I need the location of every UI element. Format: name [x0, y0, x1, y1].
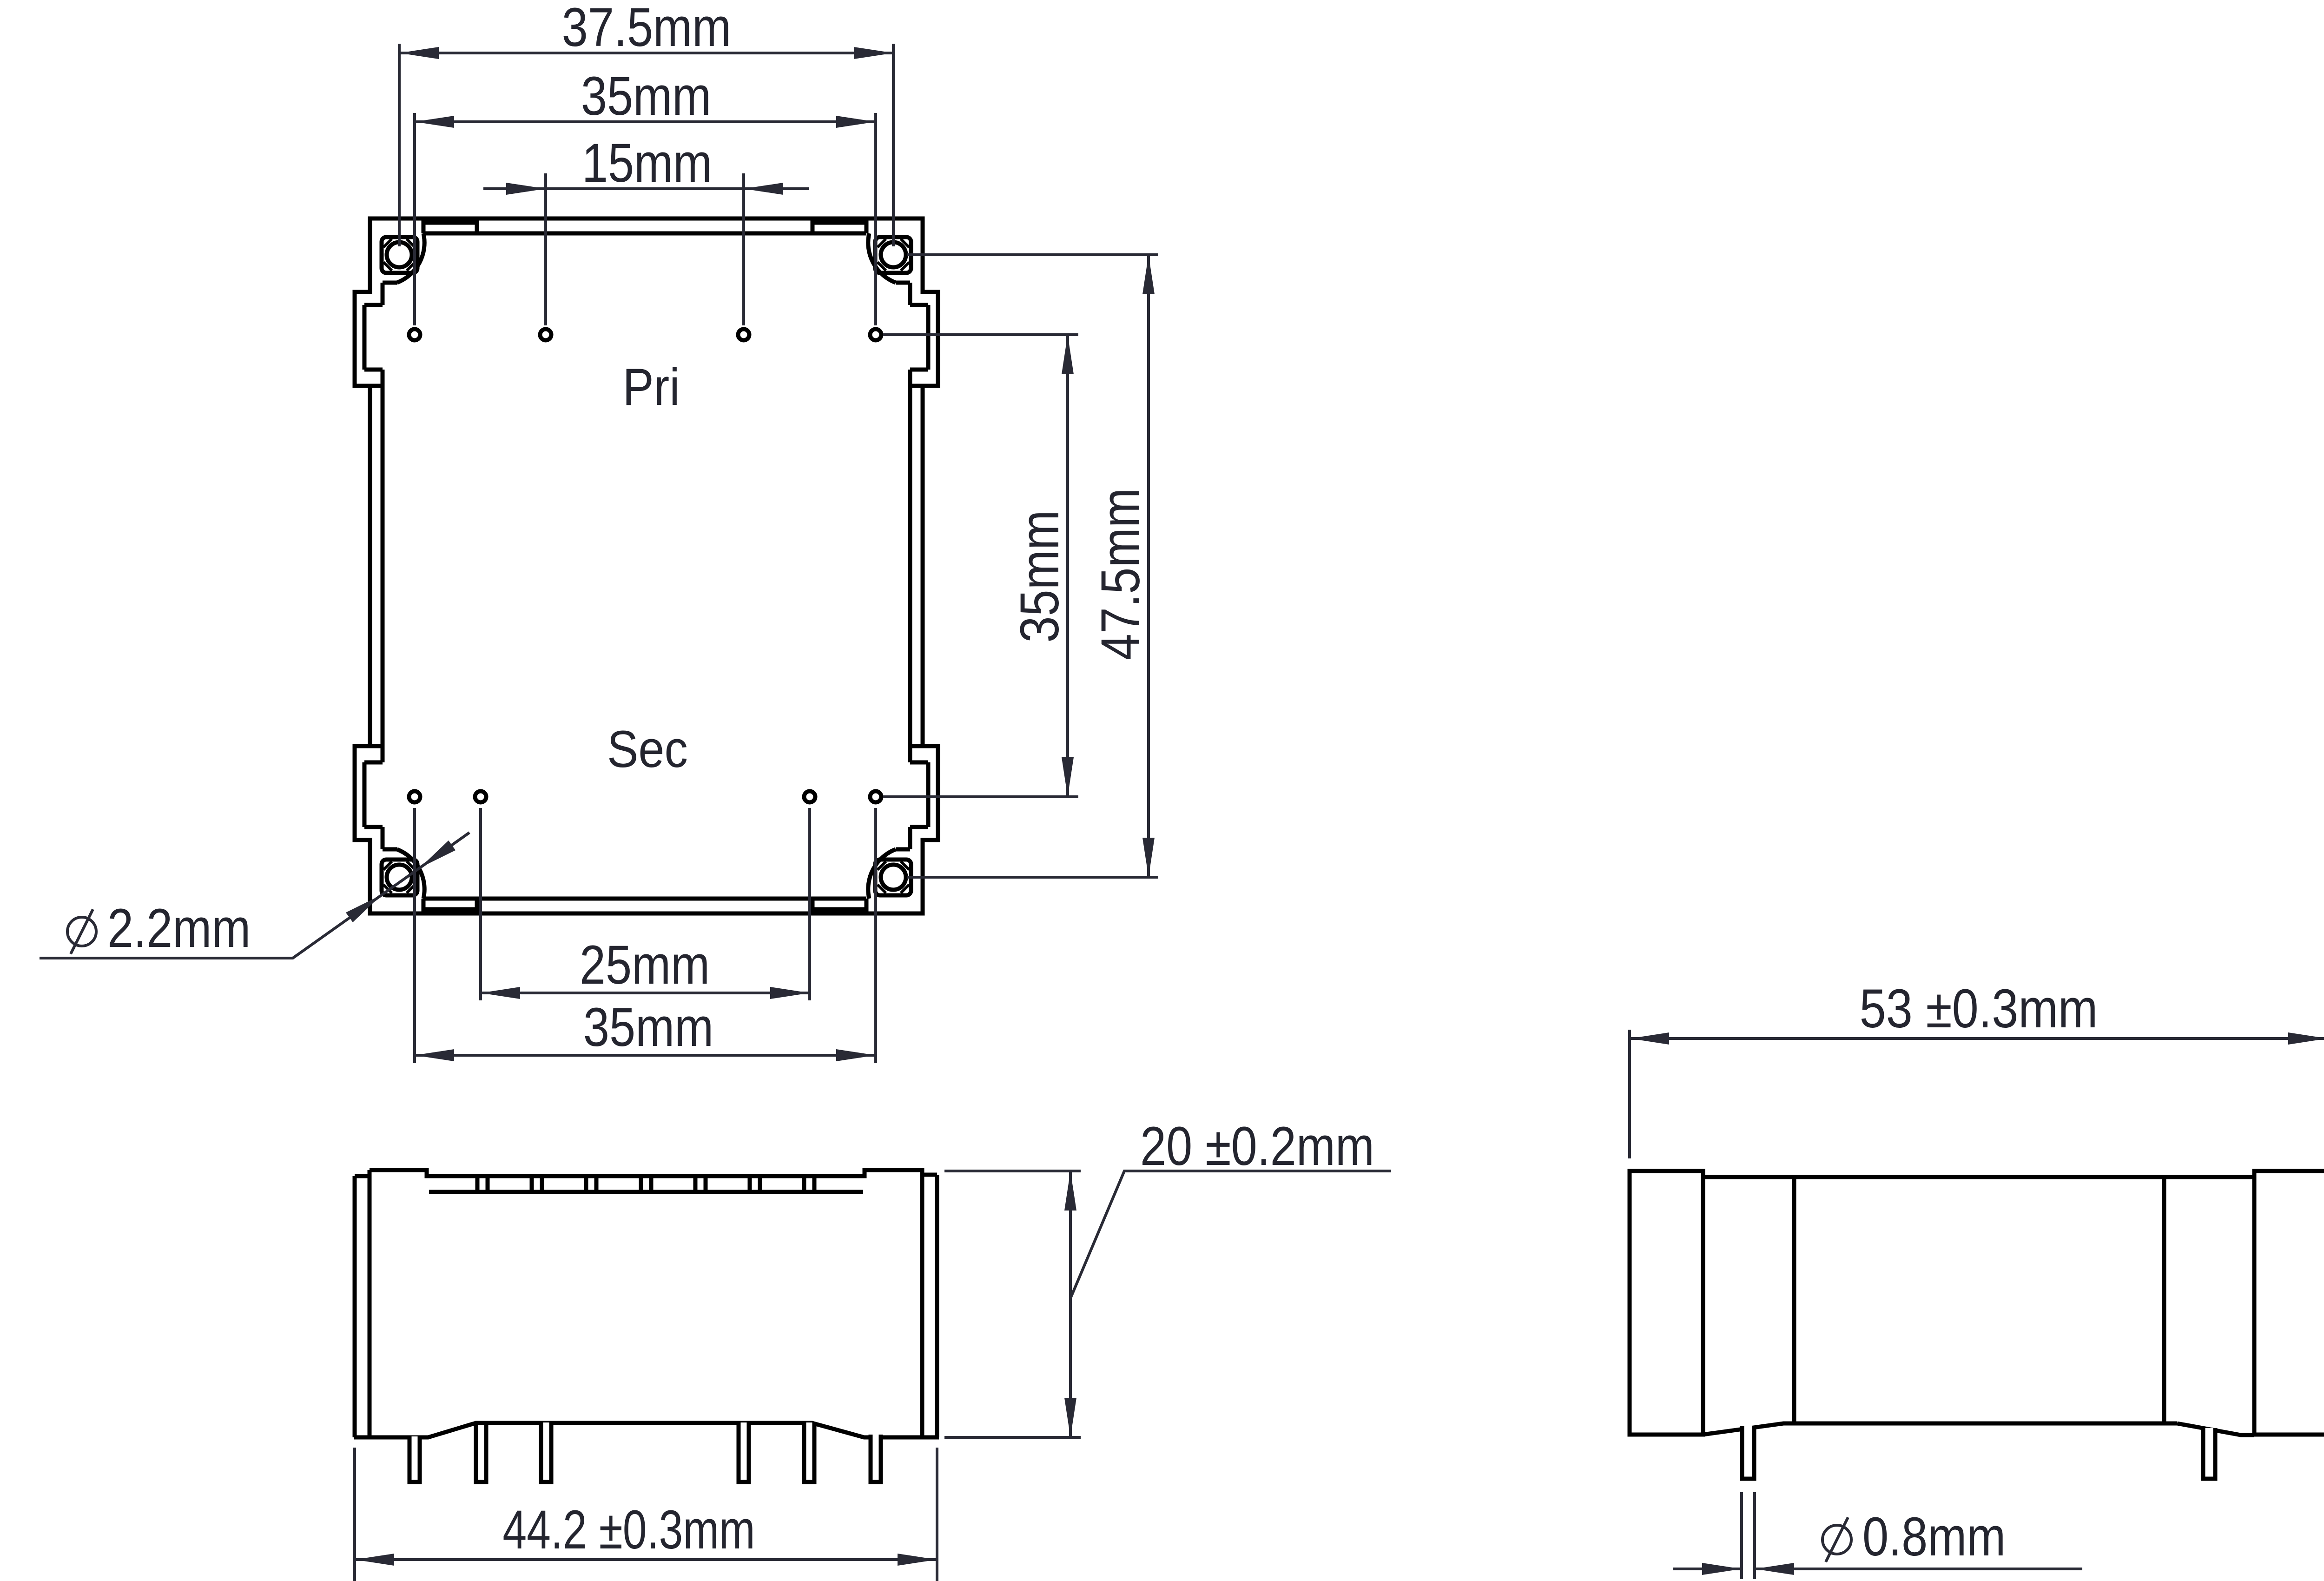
- svg-text:Sec: Sec: [607, 720, 688, 778]
- svg-text:35mm: 35mm: [1009, 510, 1070, 642]
- svg-text:44.2 ±0.3mm: 44.2 ±0.3mm: [502, 1499, 755, 1560]
- svg-text:25mm: 25mm: [580, 935, 710, 996]
- svg-text:0.8mm: 0.8mm: [1862, 1507, 2006, 1568]
- svg-text:Pri: Pri: [622, 358, 680, 416]
- svg-text:35mm: 35mm: [581, 66, 711, 127]
- svg-text:35mm: 35mm: [583, 997, 713, 1058]
- svg-text:53 ±0.3mm: 53 ±0.3mm: [1860, 978, 2098, 1039]
- svg-text:15mm: 15mm: [582, 133, 712, 194]
- svg-text:20 ±0.2mm: 20 ±0.2mm: [1140, 1116, 1374, 1177]
- svg-text:47.5mm: 47.5mm: [1090, 488, 1151, 661]
- svg-text:2.2mm: 2.2mm: [107, 898, 251, 959]
- svg-text:37.5mm: 37.5mm: [562, 0, 731, 58]
